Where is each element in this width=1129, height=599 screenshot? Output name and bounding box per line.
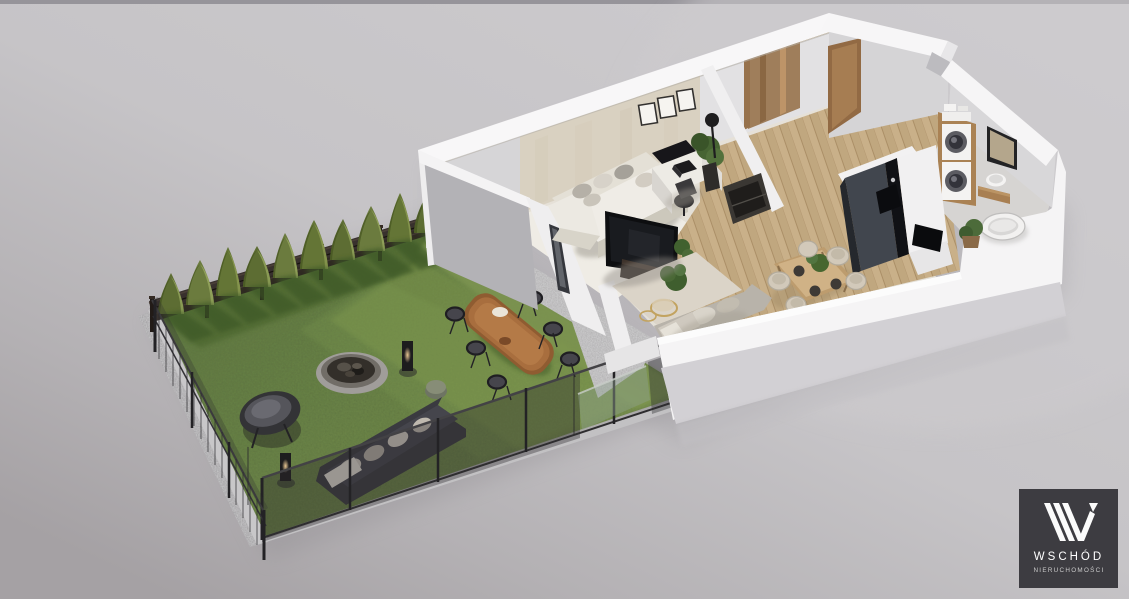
- svg-text:WSCHÓD: WSCHÓD: [1034, 550, 1104, 563]
- svg-text:NIERUCHOMOŚCI: NIERUCHOMOŚCI: [1033, 565, 1104, 574]
